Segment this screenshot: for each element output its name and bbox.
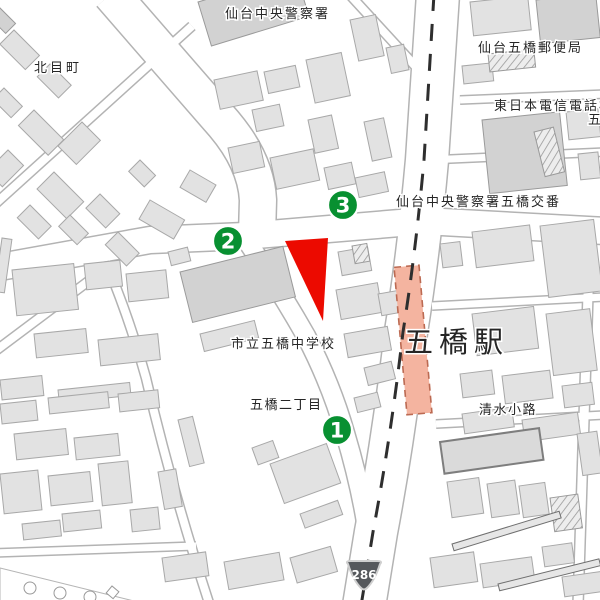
marker-3-number: 3 [336, 194, 351, 218]
marker-1[interactable]: 1 [322, 415, 352, 445]
itsutsubashi-post-office-label: 仙台五橋郵便局 [478, 41, 583, 56]
itsutsubashi-2chome-label: 五橋二丁目 [250, 398, 323, 413]
sendai-central-police-label: 仙台中央警察署 [225, 6, 330, 22]
ntt-east-line2-label: 五 [588, 113, 600, 128]
itsutsubashi-koban-label: 仙台中央警察署五橋交番 [396, 194, 561, 210]
marker-2-number: 2 [221, 230, 236, 254]
kitamemachi-label: 北目町 [34, 61, 82, 76]
itsutsubashi-junior-high-label: 市立五橋中学校 [231, 336, 336, 352]
marker-3[interactable]: 3 [328, 190, 358, 220]
route-number: 286 [351, 568, 376, 582]
ntt-east-line1-label: 東日本電信電話株 [494, 98, 600, 114]
shimizukoji-label: 清水小路 [479, 402, 537, 418]
marker-1-number: 1 [330, 419, 345, 443]
map-canvas[interactable]: 286 北目町仙台中央警察署仙台五橋郵便局東日本電信電話株五仙台中央警察署五橋交… [0, 0, 600, 600]
map-viewport[interactable]: 286 北目町仙台中央警察署仙台五橋郵便局東日本電信電話株五仙台中央警察署五橋交… [0, 0, 600, 600]
marker-2[interactable]: 2 [213, 226, 243, 256]
itsutsubashi-station-label: 五橋駅 [404, 325, 509, 359]
